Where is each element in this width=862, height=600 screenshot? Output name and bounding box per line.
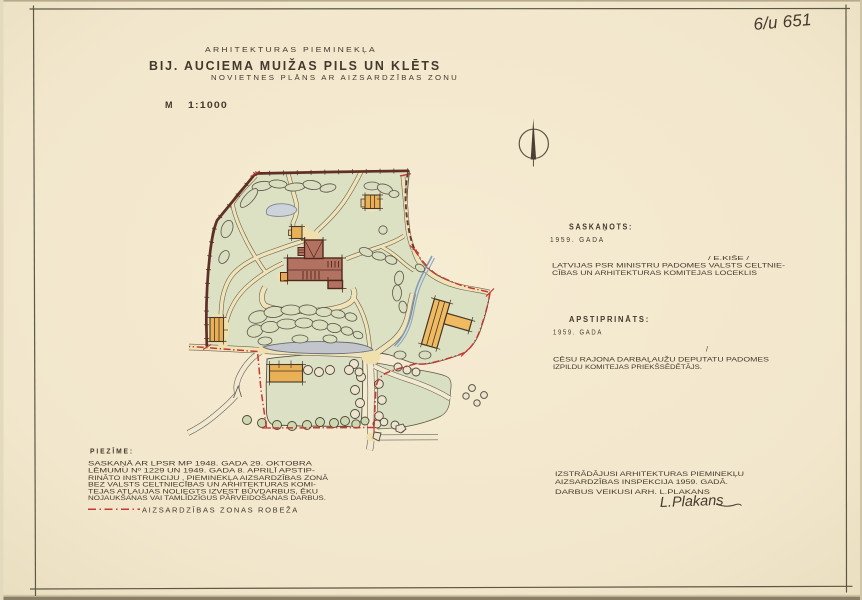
svg-text:SASKAŅĀ AR LPSR MP 1948. GADA: SASKAŅĀ AR LPSR MP 1948. GADA 29. OKTOBR… (88, 459, 313, 467)
svg-text:AIZSARDZĪBAS INSPEKCIJA 1959.: AIZSARDZĪBAS INSPEKCIJA 1959. GADĀ. (555, 478, 728, 486)
svg-text:/: / (706, 347, 708, 354)
svg-text:BIJ. AUCIEMA MUIŽAS PILS UN KL: BIJ. AUCIEMA MUIŽAS PILS UN KLĒTS (149, 58, 441, 73)
svg-text:APSTIPRINĀTS:: APSTIPRINĀTS: (569, 314, 650, 324)
svg-text:L.Plakans: L.Plakans (660, 493, 724, 511)
svg-text:NOVIETNES PLĀNS AR AIZSARDZĪBA: NOVIETNES PLĀNS AR AIZSARDZĪBAS ZONU (211, 74, 459, 82)
svg-text:ARHITEKTURAS PIEMINEKĻA: ARHITEKTURAS PIEMINEKĻA (205, 45, 377, 54)
svg-text:CĒSU RAJONA DARBAĻAUŽU DEPUTAT: CĒSU RAJONA DARBAĻAUŽU DEPUTATU PADOMES (553, 354, 769, 363)
svg-text:IZSTRĀDĀJUSI ARHITEKTURAS PIEM: IZSTRĀDĀJUSI ARHITEKTURAS PIEMINEKĻU (555, 470, 745, 478)
svg-text:NOJAUKŠANAS VAI TAMLĪDZĪGUS PĀ: NOJAUKŠANAS VAI TAMLĪDZĪGUS PĀRVEIDOŠANA… (88, 493, 326, 502)
svg-text:LĒMUMU Nº 1229 UN 1949. GADA 8: LĒMUMU Nº 1229 UN 1949. GADA 8. APRILĪ A… (88, 467, 315, 475)
svg-text:PIEZĪME:: PIEZĪME: (90, 447, 134, 456)
svg-text:1959. GADA: 1959. GADA (553, 328, 603, 337)
svg-text:LATVIJAS PSR MINISTRU PADOMES: LATVIJAS PSR MINISTRU PADOMES VALSTS CEL… (552, 262, 785, 269)
svg-text:IZPILDU KOMITEJAS PRIEKŠSĒDĒTĀ: IZPILDU KOMITEJAS PRIEKŠSĒDĒTĀJS. (553, 362, 702, 371)
svg-text:AIZSARDZĪBAS ZONAS ROBEŽA: AIZSARDZĪBAS ZONAS ROBEŽA (142, 505, 299, 514)
svg-text:BEZ VALSTS CELTNIECĪBAS UN ARH: BEZ VALSTS CELTNIECĪBAS UN ARHITEKTURAS … (88, 480, 316, 488)
svg-text:1959. GADA: 1959. GADA (550, 235, 605, 244)
svg-text:M: M (165, 100, 174, 110)
svg-text:/ E.KIŠE /: / E.KIŠE / (708, 255, 750, 262)
svg-text:1:1000: 1:1000 (188, 100, 228, 110)
svg-text:SASKAŅOTS:: SASKAŅOTS: (569, 222, 633, 232)
svg-text:CĪBAS UN ARHITEKTURAS KOMITEJA: CĪBAS UN ARHITEKTURAS KOMITEJAS LOCEKLIS (552, 269, 757, 277)
